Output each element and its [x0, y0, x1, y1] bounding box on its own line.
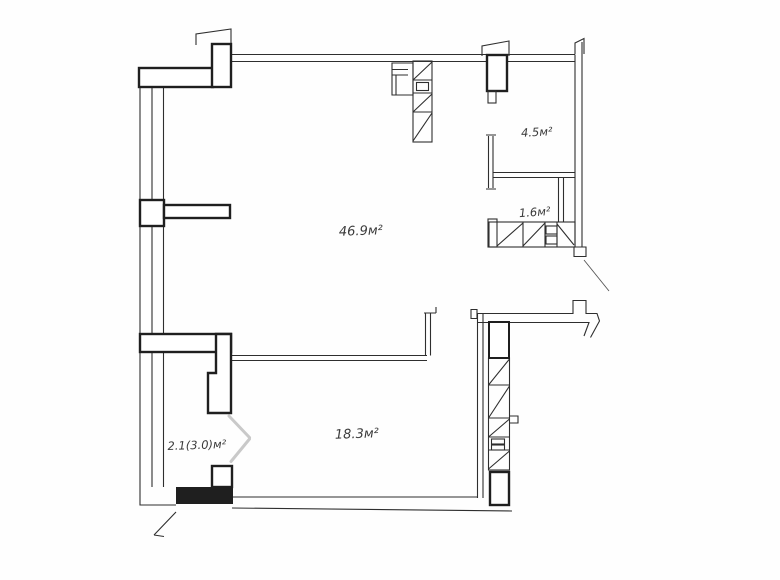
- floor-plan-page: 46.9м² 4.5м² 1.6м² 18.3м² 2.1(3.0)м²: [0, 0, 780, 580]
- window-and-thin-walls: [140, 29, 609, 537]
- floor-plan-svg: 46.9м² 4.5м² 1.6м² 18.3м² 2.1(3.0)м²: [0, 0, 780, 580]
- door-leaf-lower: [231, 439, 250, 462]
- top-left-wall-block: [139, 68, 213, 87]
- right-vent-shaft: [489, 322, 519, 505]
- right-vent-shaft-box-1: [492, 439, 505, 444]
- top-vent-shaft-box: [417, 83, 429, 91]
- left-wall-pier: [140, 200, 164, 226]
- band-shaft-1-6: [488, 219, 575, 247]
- bottom-room-right-wall: [478, 314, 484, 499]
- top-vent-shaft: [392, 61, 432, 142]
- top-right-pier-cap: [482, 41, 509, 56]
- bottom-left-wall-block: [176, 487, 233, 504]
- band-shaft-outline: [489, 222, 575, 247]
- bottom-left-cut: [154, 512, 176, 537]
- room-label-4-5: 4.5м²: [521, 124, 554, 140]
- balcony-door-swing: [229, 416, 250, 462]
- top-left-break-cap: [196, 29, 231, 45]
- left-stub-wall: [164, 205, 230, 218]
- room-label-balcony: 2.1(3.0)м²: [167, 437, 227, 453]
- room-label-18-3: 18.3м²: [335, 426, 379, 443]
- band-shaft-hatch: [497, 222, 574, 247]
- room-label-main: 46.9м²: [339, 223, 383, 240]
- top-window-band: [231, 55, 575, 62]
- room-label-1-6: 1.6м²: [518, 204, 551, 220]
- right-vent-top-box: [489, 322, 509, 358]
- top-right-pier: [487, 55, 507, 91]
- wall-piers: [139, 44, 507, 504]
- right-vent-shaft-foot: [510, 416, 519, 423]
- right-vent-shaft-box-2: [492, 445, 505, 450]
- break-leader-line: [584, 260, 609, 291]
- band-shaft-box-2: [546, 236, 557, 244]
- right-vent-shaft-hatch: [489, 359, 510, 469]
- right-vent-bottom-box: [490, 472, 509, 505]
- centre-partition: [232, 307, 436, 361]
- top-vent-shaft-hatch: [413, 62, 432, 141]
- door-leaf-upper: [229, 416, 250, 438]
- top-left-pier: [212, 44, 231, 87]
- top-right-pier-stub: [488, 91, 496, 103]
- top-vent-duct: [392, 63, 413, 95]
- bottom-exterior-wall: [232, 497, 512, 511]
- band-shaft-box-1: [546, 226, 557, 234]
- balcony-door-pier-lower: [212, 466, 232, 487]
- top-vent-shaft-outline: [413, 61, 432, 142]
- right-upper-wall: [574, 39, 586, 257]
